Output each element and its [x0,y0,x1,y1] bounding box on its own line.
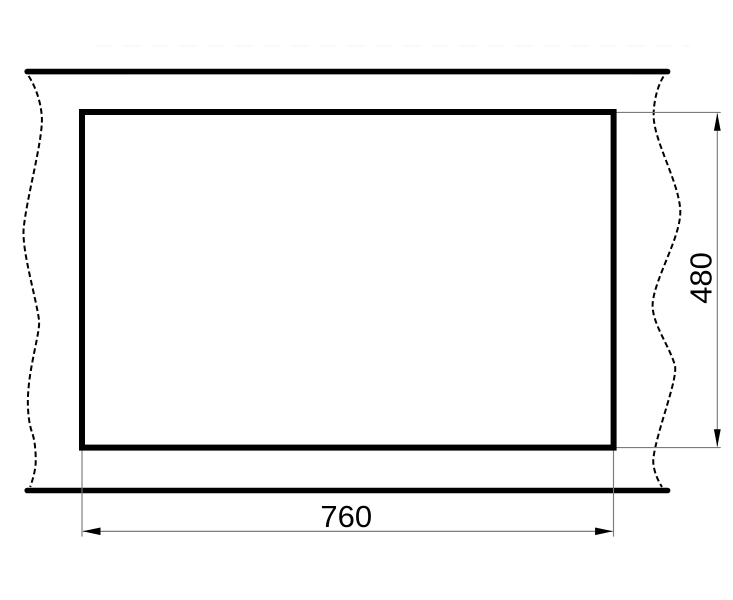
svg-text:760: 760 [320,499,372,534]
svg-text:480: 480 [684,252,719,304]
